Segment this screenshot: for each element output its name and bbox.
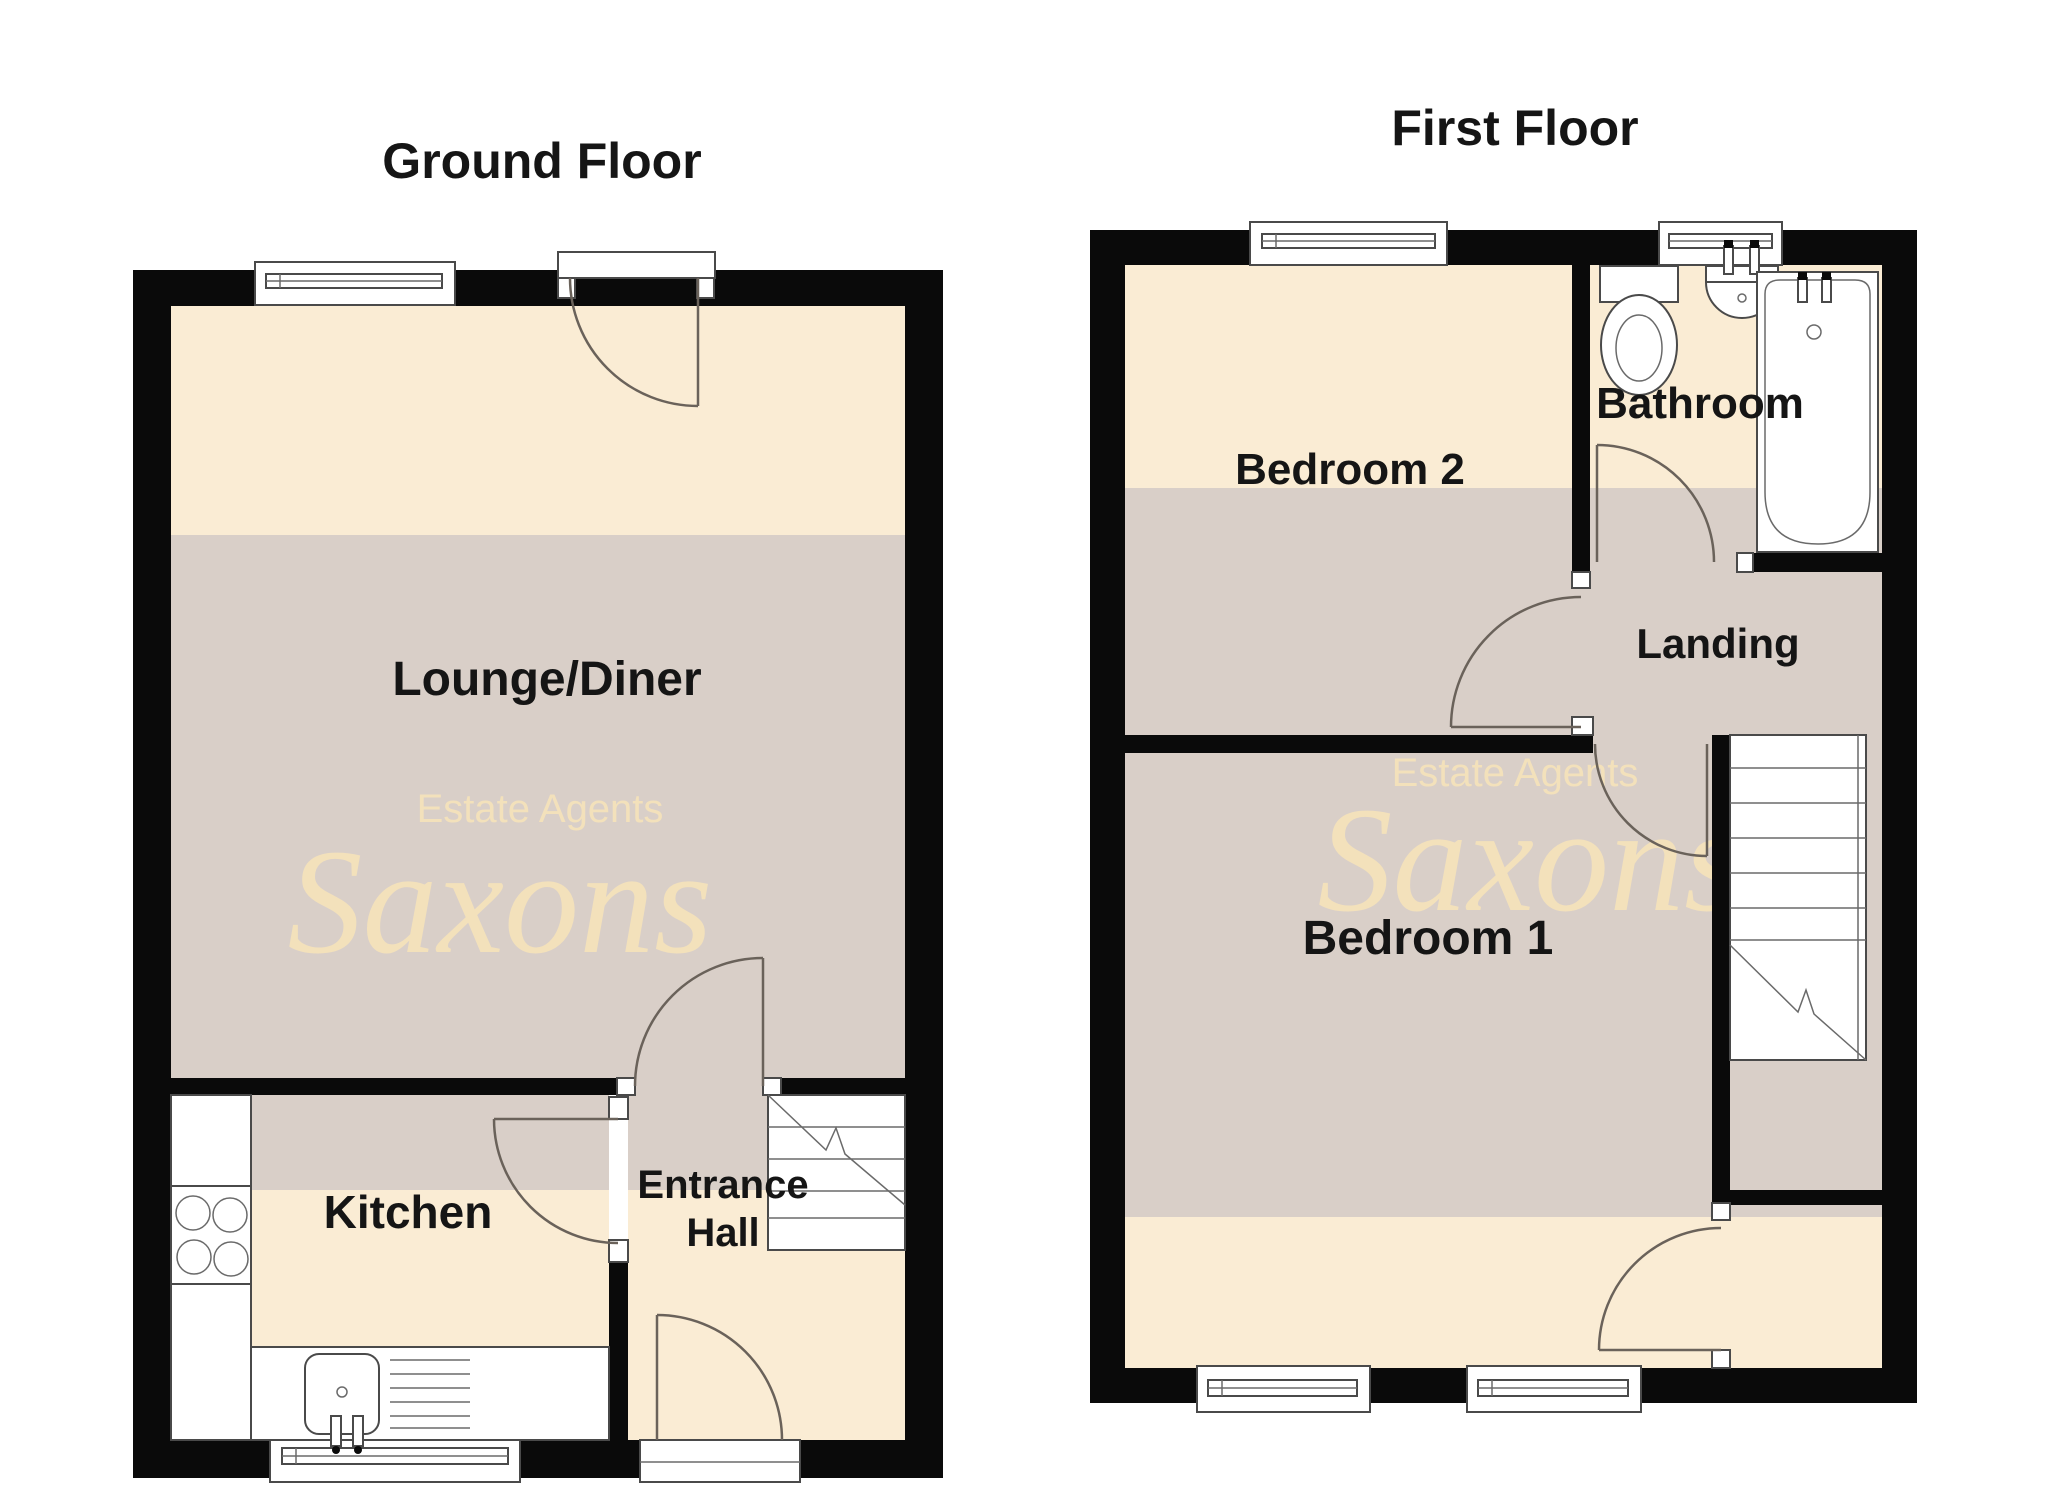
bathroom-window — [1659, 222, 1782, 265]
door-jamb — [763, 1078, 781, 1095]
entrance-hall-label-line2: Hall — [686, 1211, 759, 1255]
wall-bedroom2-bathroom — [1572, 265, 1590, 572]
kitchen-label: Kitchen — [324, 1186, 493, 1238]
first-floor-title: First Floor — [1391, 100, 1638, 156]
first-stairs — [1730, 735, 1866, 1060]
door-jamb — [697, 278, 714, 298]
bedroom2-label: Bedroom 2 — [1235, 445, 1465, 494]
wall-lounge-kitchen — [171, 1078, 635, 1095]
ground-floor-title: Ground Floor — [382, 133, 701, 189]
floorplan-drawing: Ground Floor Estate Agents Saxons — [0, 0, 2048, 1489]
wall-bedroom1-bedroom2 — [1125, 735, 1593, 753]
kitchen-hob — [171, 1186, 251, 1284]
bathroom-label: Bathroom — [1596, 379, 1804, 428]
toilet — [1600, 266, 1678, 395]
floorplan-page: Ground Floor Estate Agents Saxons — [0, 0, 2048, 1489]
door-jamb — [1712, 1203, 1730, 1220]
bedroom2-window — [1250, 222, 1447, 265]
front-door-threshold — [640, 1440, 800, 1482]
door-jamb — [1737, 553, 1753, 572]
door-jamb — [558, 278, 575, 298]
back-door-recess — [558, 252, 715, 278]
lounge-window — [255, 262, 455, 305]
ground-floor-plan: Ground Floor Estate Agents Saxons — [133, 133, 943, 1482]
first-floor-plan: First Floor Estate Agents Saxons — [1090, 100, 1917, 1412]
bedroom1-window-right — [1467, 1366, 1641, 1412]
bedroom1-label: Bedroom 1 — [1303, 912, 1554, 965]
door-jamb — [609, 1097, 628, 1119]
landing-label: Landing — [1636, 620, 1799, 667]
door-jamb — [1572, 572, 1590, 588]
door-jamb — [1712, 1350, 1730, 1368]
wall-lounge-hall — [763, 1078, 905, 1095]
entrance-hall-label-line1: Entrance — [637, 1163, 808, 1207]
ground-watermark-brand: Saxons — [288, 819, 713, 985]
door-jamb — [617, 1078, 635, 1095]
lounge-label: Lounge/Diner — [392, 653, 701, 706]
bedroom1-window-left — [1197, 1366, 1370, 1412]
kitchen-window — [270, 1436, 520, 1482]
wall-cupboard — [1730, 1190, 1882, 1205]
wall-bathroom-landing — [1753, 553, 1882, 572]
